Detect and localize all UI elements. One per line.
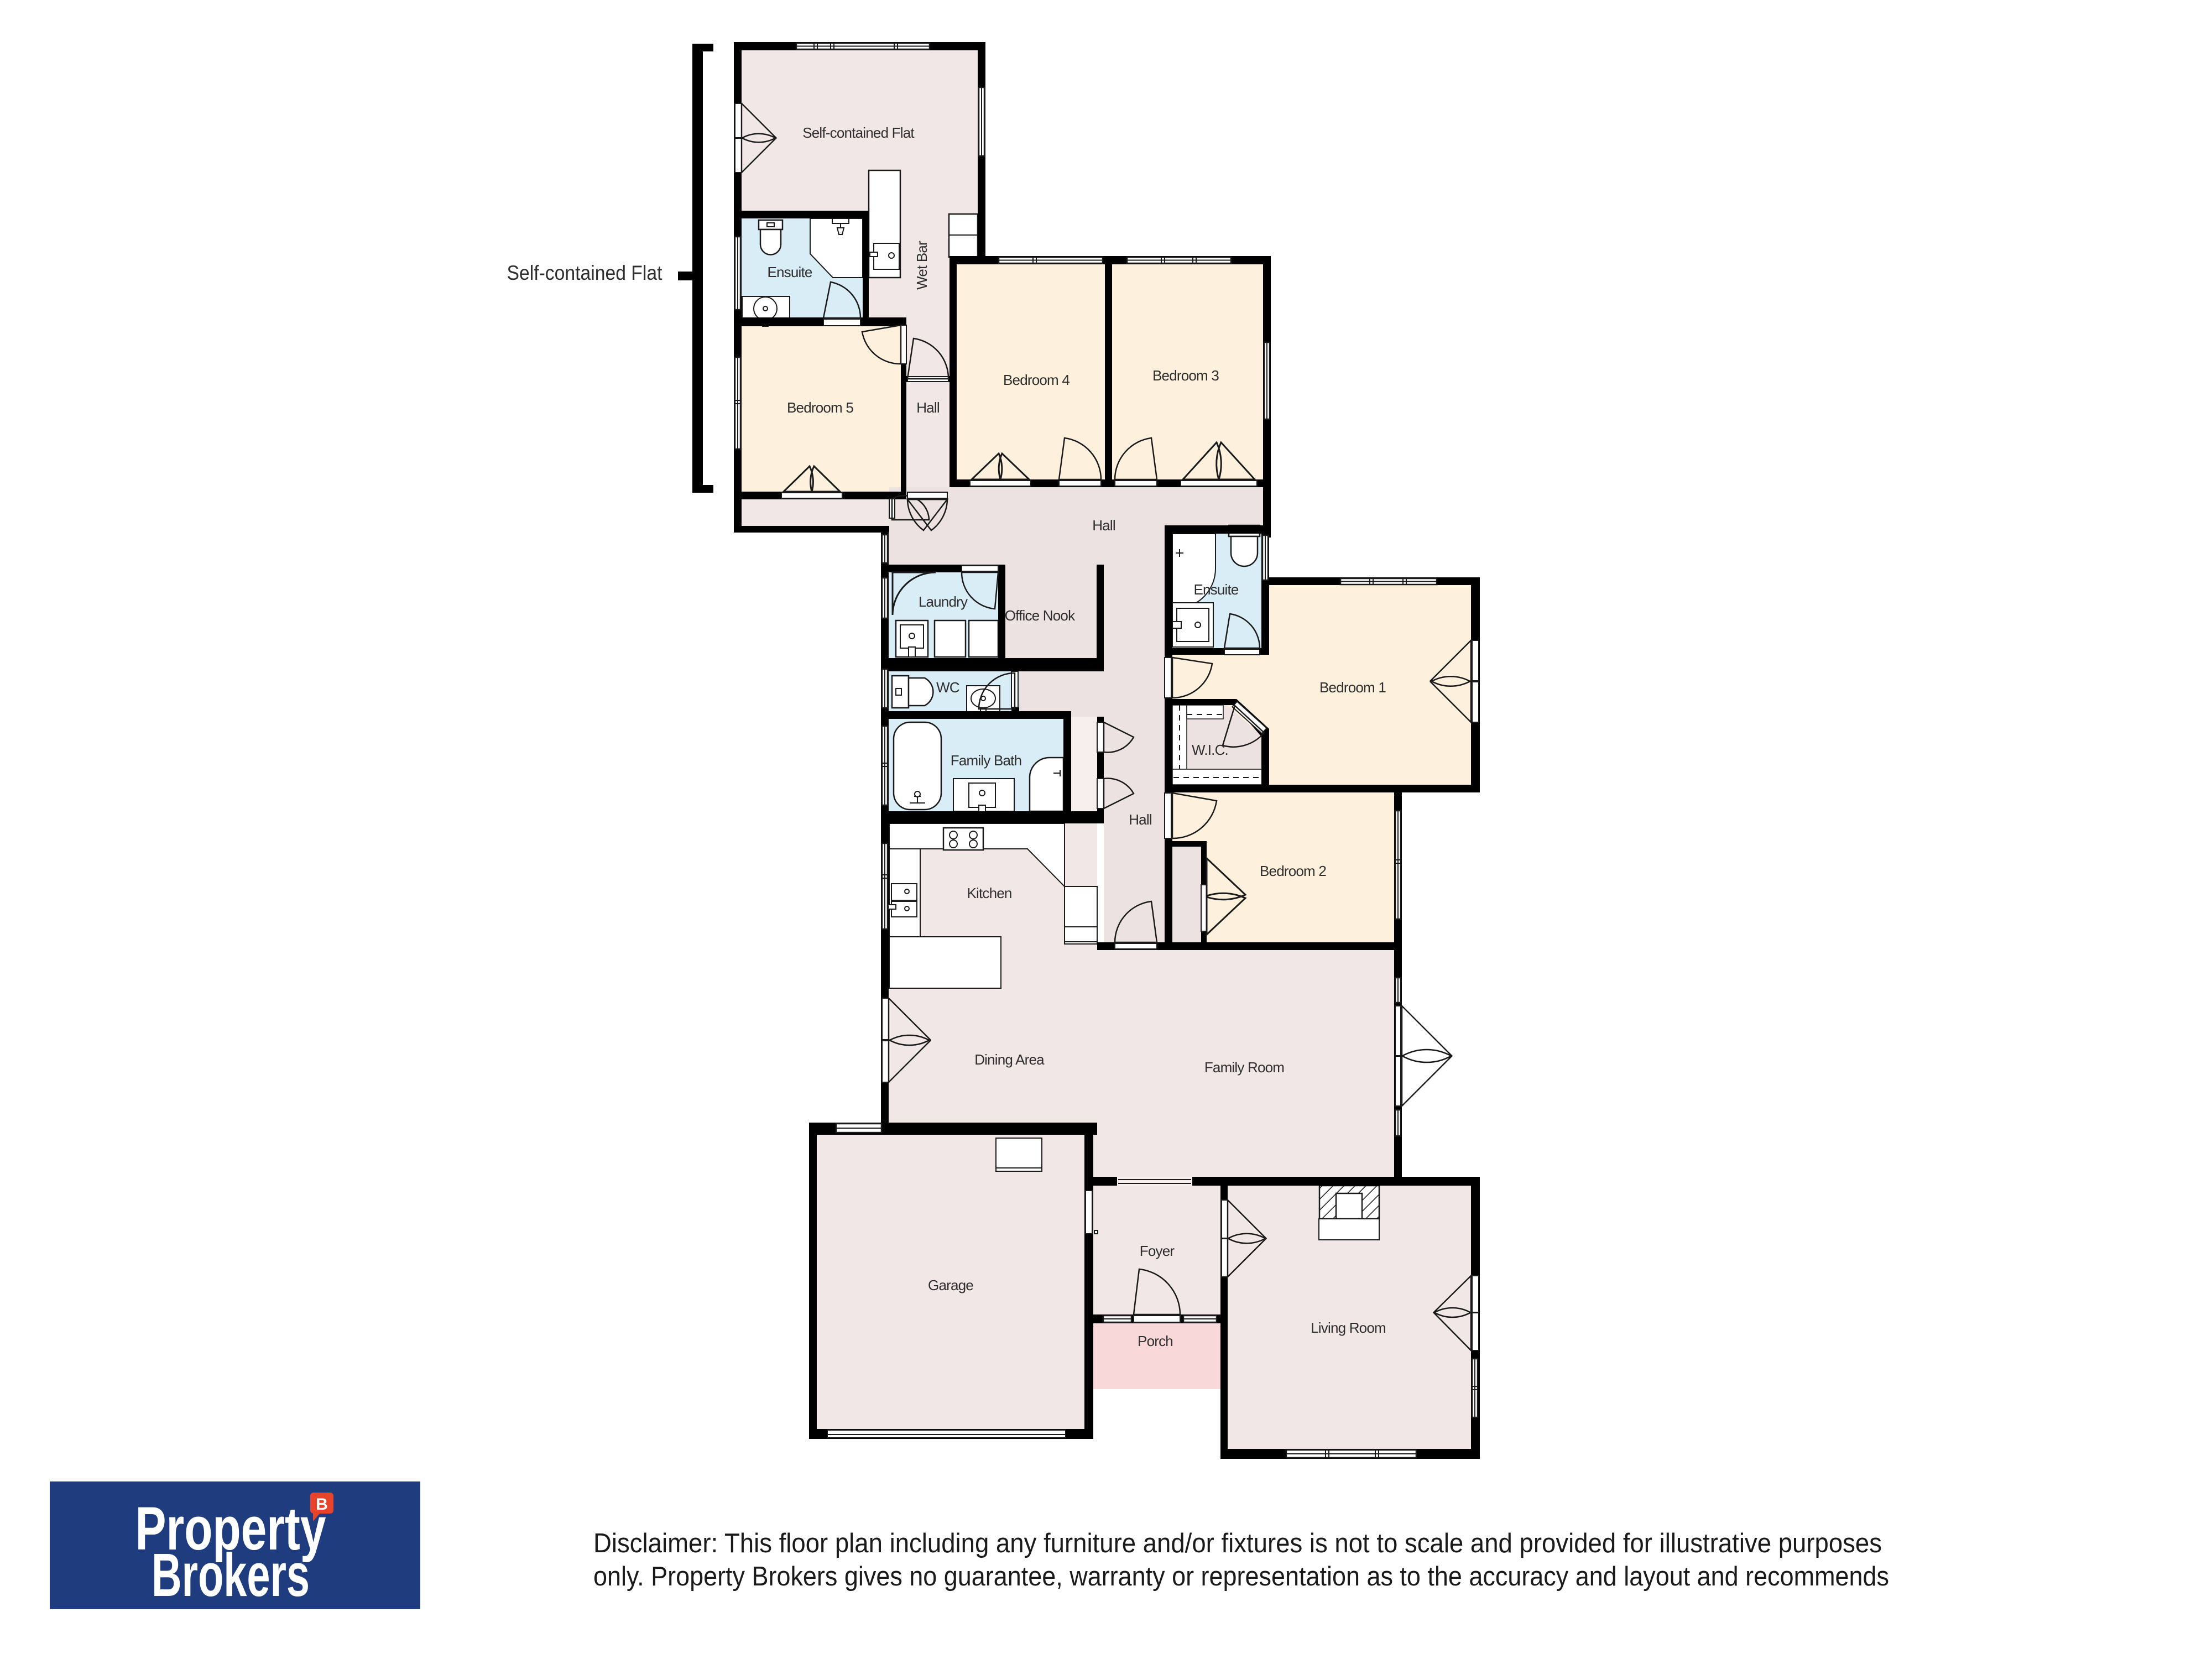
- svg-text:W.I.C.: W.I.C.: [1192, 742, 1228, 758]
- svg-text:Ensuite: Ensuite: [767, 264, 812, 280]
- svg-text:WC: WC: [936, 679, 959, 696]
- svg-text:Bedroom 2: Bedroom 2: [1260, 863, 1326, 879]
- svg-text:only. Property Brokers gives n: only. Property Brokers gives no guarante…: [593, 1562, 1889, 1592]
- svg-text:Hall: Hall: [916, 399, 940, 416]
- svg-text:Family Bath: Family Bath: [951, 752, 1021, 769]
- svg-text:Brokers: Brokers: [152, 1541, 310, 1609]
- svg-text:Dining Area: Dining Area: [974, 1051, 1045, 1068]
- svg-text:Family Room: Family Room: [1204, 1059, 1284, 1076]
- svg-text:B: B: [316, 1495, 328, 1514]
- svg-text:Self-contained Flat: Self-contained Flat: [802, 124, 915, 141]
- svg-text:Office Nook: Office Nook: [1005, 607, 1076, 624]
- svg-text:Hall: Hall: [1129, 811, 1152, 828]
- svg-text:Wet Bar: Wet Bar: [914, 241, 930, 290]
- svg-text:Laundry: Laundry: [919, 593, 968, 610]
- svg-text:Bedroom 1: Bedroom 1: [1319, 679, 1386, 696]
- svg-text:Kitchen: Kitchen: [967, 885, 1011, 901]
- svg-text:Disclaimer: This floor plan in: Disclaimer: This floor plan including an…: [593, 1528, 1882, 1558]
- svg-text:Bedroom 4: Bedroom 4: [1003, 372, 1070, 388]
- svg-text:Garage: Garage: [928, 1277, 973, 1293]
- svg-text:Self-contained Flat: Self-contained Flat: [507, 262, 663, 284]
- svg-text:Living Room: Living Room: [1311, 1319, 1386, 1336]
- svg-text:Foyer: Foyer: [1140, 1243, 1175, 1259]
- svg-text:Hall: Hall: [1092, 517, 1115, 534]
- svg-text:Ensuite: Ensuite: [1193, 581, 1238, 598]
- svg-text:Bedroom 3: Bedroom 3: [1152, 367, 1219, 384]
- svg-text:Bedroom 5: Bedroom 5: [787, 399, 853, 416]
- svg-text:Porch: Porch: [1138, 1333, 1173, 1349]
